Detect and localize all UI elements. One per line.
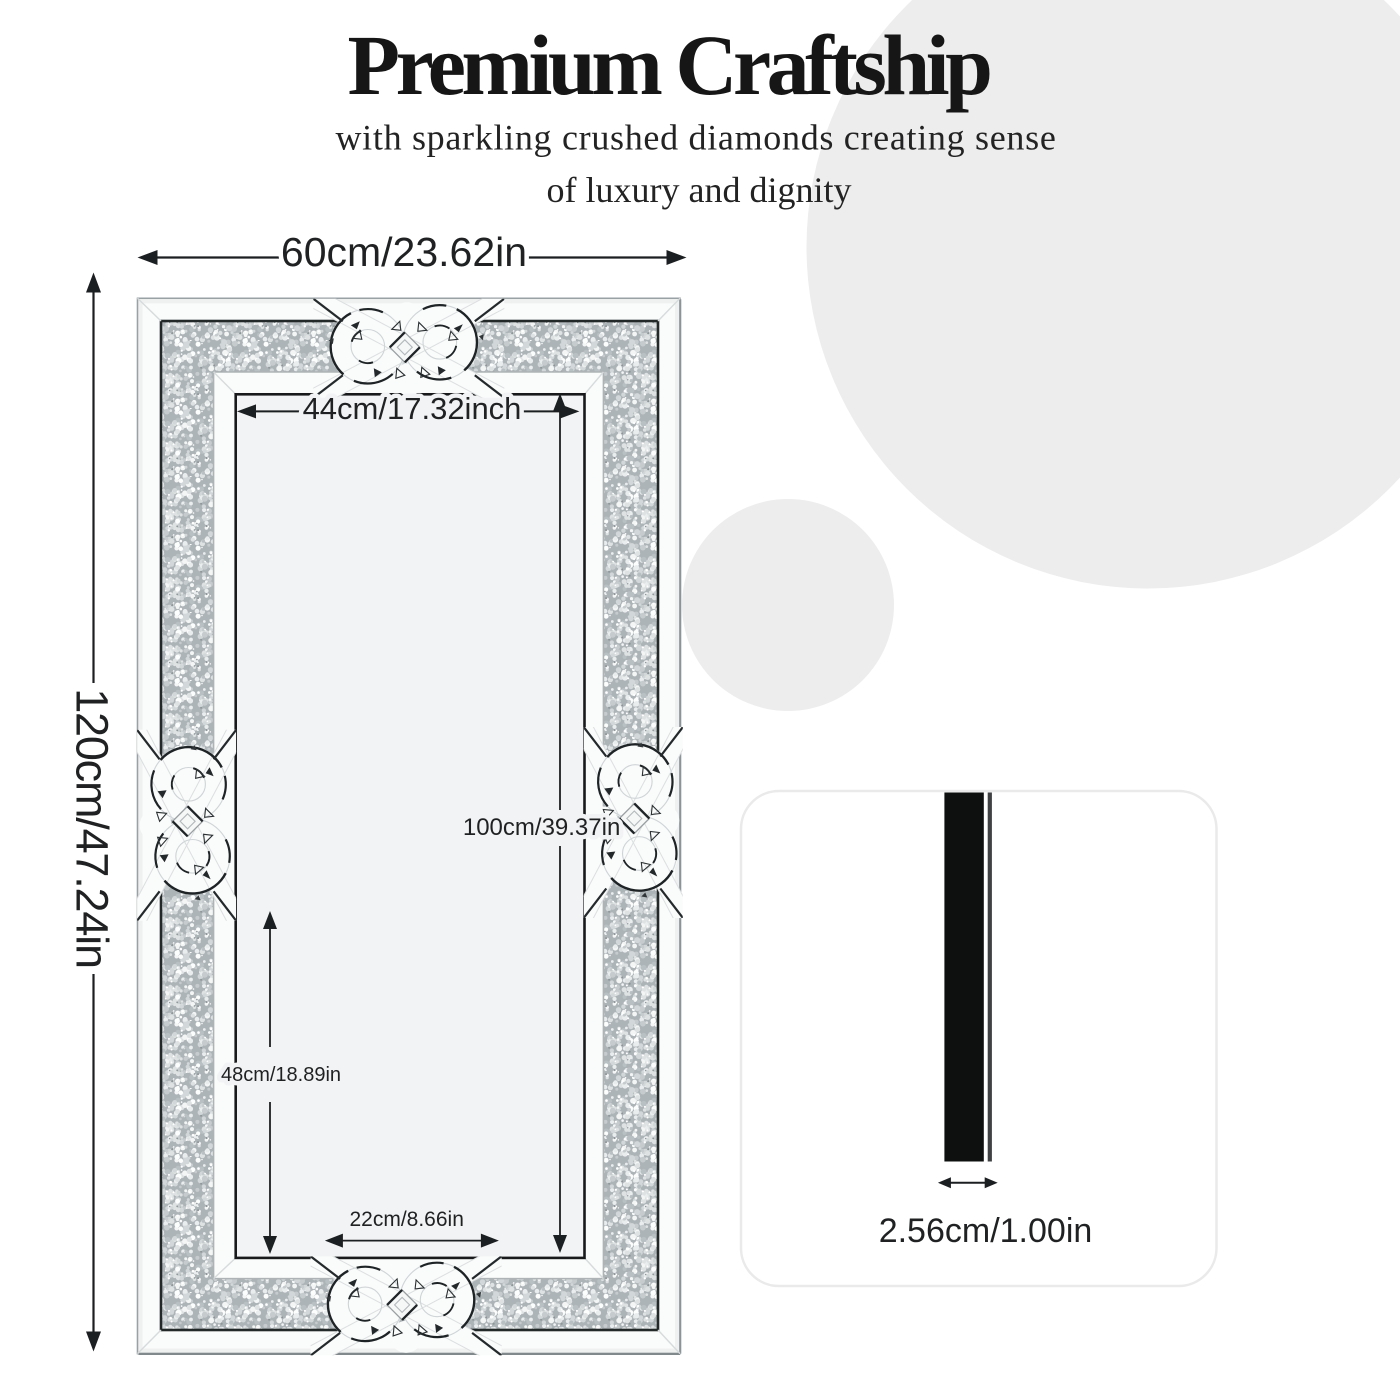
svg-text:with sparkling crushed diamond: with sparkling crushed diamonds creating… (335, 118, 1056, 158)
svg-text:Premium Craftship: Premium Craftship (348, 17, 991, 113)
svg-text:60cm/23.62in: 60cm/23.62in (281, 229, 527, 275)
svg-text:100cm/39.37in: 100cm/39.37in (463, 814, 620, 841)
svg-text:2.56cm/1.00in: 2.56cm/1.00in (879, 1212, 1093, 1250)
svg-text:22cm/8.66in: 22cm/8.66in (349, 1208, 463, 1231)
svg-text:48cm/18.89in: 48cm/18.89in (221, 1064, 341, 1086)
svg-text:of luxury and dignity: of luxury and dignity (547, 170, 852, 210)
svg-text:44cm/17.32inch: 44cm/17.32inch (303, 391, 522, 426)
svg-text:120cm/47.24in: 120cm/47.24in (67, 688, 118, 968)
